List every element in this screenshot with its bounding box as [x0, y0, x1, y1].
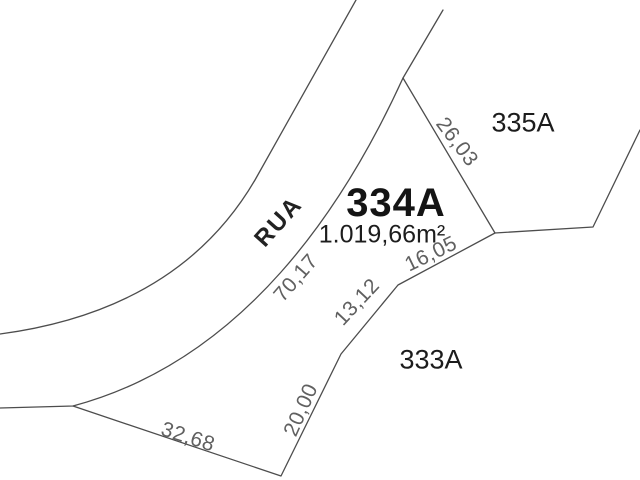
lot-335a-label: 335A	[491, 110, 554, 137]
survey-plan-canvas: RUA 334A 1.019,66m² 335A 333A 26,03 16,0…	[0, 0, 640, 480]
lot-335a-boundary-line	[495, 130, 640, 233]
lot-334a-label: 334A	[346, 183, 446, 223]
lot-333a-label: 333A	[399, 347, 462, 374]
